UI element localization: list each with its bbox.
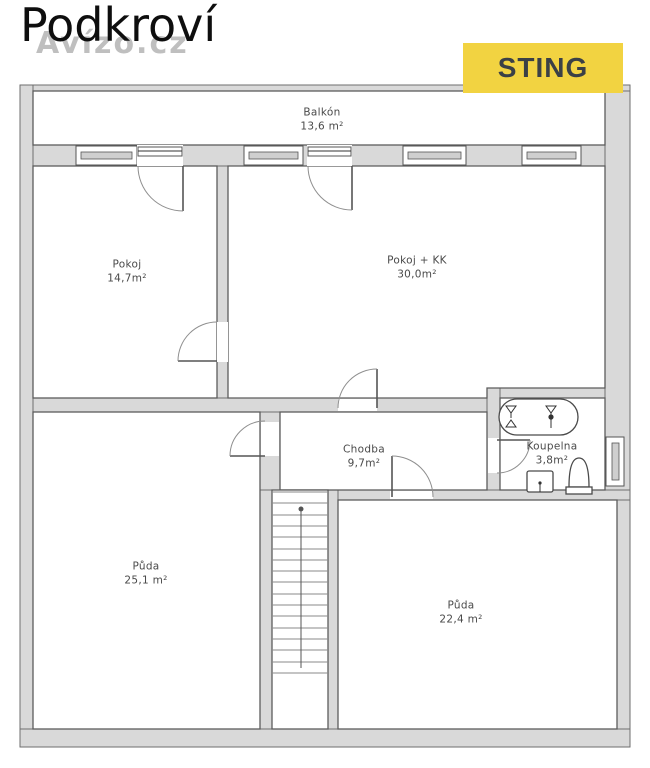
label-koupelna-area: 3,8m² xyxy=(527,454,578,468)
room-pokoj-kk xyxy=(228,166,605,398)
window-3-icon xyxy=(403,146,466,165)
label-balkon: Balkón 13,6 m² xyxy=(300,107,343,134)
label-puda-right: Půda 22,4 m² xyxy=(439,600,482,627)
sink-icon xyxy=(527,471,553,492)
label-balkon-name: Balkón xyxy=(303,107,340,119)
label-koupelna: Koupelna 3,8m² xyxy=(527,441,578,468)
floor-plan: Balkón 13,6 m² Pokoj 14,7m² Pokoj + KK 3… xyxy=(0,0,650,768)
floorplan-page: Avízo.cz Podkroví STING xyxy=(0,0,650,768)
label-pokoj-area: 14,7m² xyxy=(107,272,147,286)
label-chodba-area: 9,7m² xyxy=(343,457,385,471)
window-4-icon xyxy=(522,146,581,165)
window-1-icon xyxy=(76,146,137,165)
label-pokoj-kk-area: 30,0m² xyxy=(387,268,447,282)
label-chodba-name: Chodba xyxy=(343,444,385,456)
window-2-icon xyxy=(244,146,303,165)
label-puda-right-name: Půda xyxy=(447,600,474,612)
window-bathroom-icon xyxy=(606,437,624,486)
label-chodba: Chodba 9,7m² xyxy=(343,444,385,471)
label-pokoj-name: Pokoj xyxy=(113,259,142,271)
label-koupelna-name: Koupelna xyxy=(527,441,578,453)
bathtub-icon xyxy=(499,399,578,435)
sting-logo: STING xyxy=(463,43,623,93)
label-puda-left: Půda 25,1 m² xyxy=(124,561,167,588)
label-puda-right-area: 22,4 m² xyxy=(439,613,482,627)
label-balkon-area: 13,6 m² xyxy=(300,120,343,134)
label-pokoj-kk: Pokoj + KK 30,0m² xyxy=(387,255,447,282)
label-puda-left-area: 25,1 m² xyxy=(124,574,167,588)
label-pokoj: Pokoj 14,7m² xyxy=(107,259,147,286)
label-puda-left-name: Půda xyxy=(132,561,159,573)
label-pokoj-kk-name: Pokoj + KK xyxy=(387,255,447,267)
